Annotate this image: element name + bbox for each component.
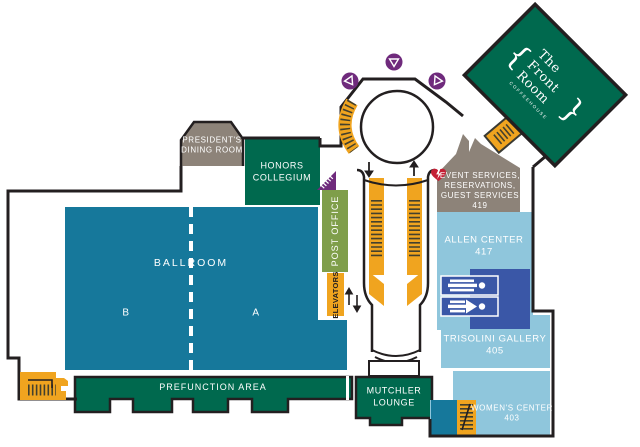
corridor-walls	[357, 170, 435, 363]
label-trisolini-gallery: TRISOLINI GALLERY 405	[444, 334, 547, 359]
room-ballroom	[65, 207, 347, 370]
landing	[369, 361, 419, 376]
escalator-icon	[369, 178, 422, 306]
curved-stairs-icon	[345, 102, 354, 150]
elevator-arrows	[346, 288, 361, 312]
label-prefunction-area: PREFUNCTION AREA	[159, 382, 267, 394]
label-presidents-dining-room: PRESIDENT'S DINING ROOM	[181, 136, 243, 157]
escalator-up-arrow	[410, 161, 418, 176]
escalator-down-arrow	[365, 162, 373, 177]
label-ballroom-b: B	[122, 307, 129, 320]
label-post-office: POST OFFICE	[330, 196, 342, 267]
wall-gap	[346, 376, 349, 400]
service-area	[431, 400, 457, 436]
label-mutchler-lounge: MUTCHLER LOUNGE	[367, 385, 422, 408]
floor-map: PRESIDENT'S DINING ROOM HONORS COLLEGIUM…	[0, 0, 640, 447]
stairs-icon	[20, 372, 68, 400]
label-allen-center: ALLEN CENTER 417	[445, 235, 524, 260]
label-elevators: ELEVATORS	[331, 271, 341, 318]
label-honors-collegium: HONORS COLLEGIUM	[253, 160, 311, 183]
rotunda	[361, 91, 433, 163]
label-womens-center: WOMEN'S CENTER 403	[471, 404, 553, 425]
corridor-area	[453, 371, 550, 400]
label-event-services: EVENT SERVICES, RESERVATIONS, GUEST SERV…	[440, 171, 520, 211]
label-ballroom-a: A	[252, 307, 259, 320]
label-ballroom: BALLROOM	[154, 257, 228, 271]
map-marker-icons	[342, 54, 446, 90]
